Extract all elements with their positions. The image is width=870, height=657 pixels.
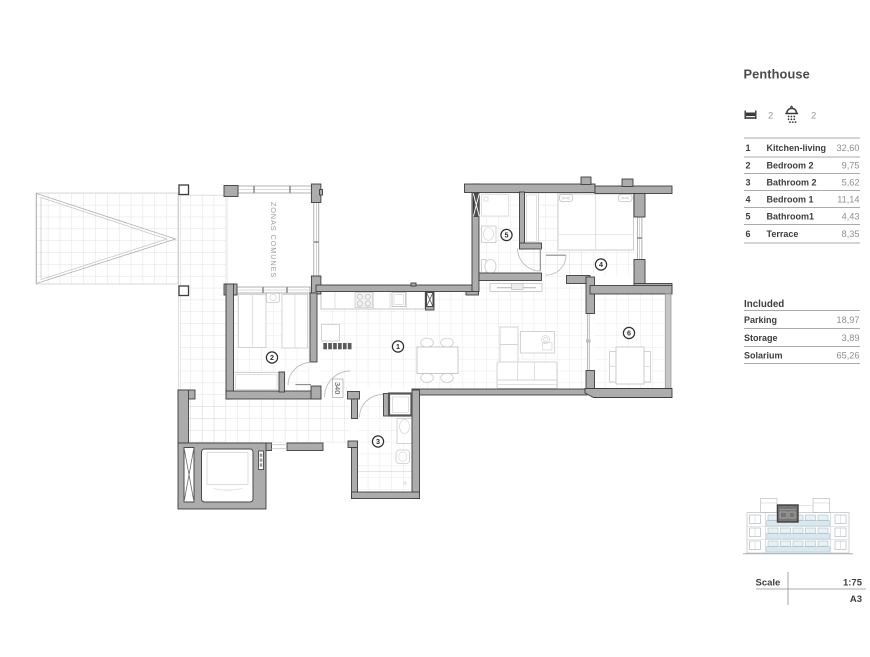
svg-text:2: 2 (746, 161, 751, 171)
svg-text:18,97: 18,97 (837, 315, 860, 325)
svg-text:Scale: Scale (756, 578, 781, 589)
svg-text:Bedroom 2: Bedroom 2 (767, 161, 814, 171)
svg-text:A3: A3 (850, 594, 862, 605)
svg-text:3: 3 (376, 437, 380, 446)
svg-text:Bathroom1: Bathroom1 (767, 211, 815, 221)
svg-text:Penthouse: Penthouse (744, 67, 810, 82)
svg-text:65,26: 65,26 (837, 350, 860, 360)
svg-text:3,89: 3,89 (842, 333, 860, 343)
svg-text:4: 4 (746, 194, 751, 204)
svg-text:3: 3 (746, 177, 751, 187)
svg-text:32,60: 32,60 (837, 143, 860, 153)
svg-text:4: 4 (599, 260, 603, 269)
svg-text:Storage: Storage (744, 333, 778, 343)
svg-text:9,75: 9,75 (842, 161, 860, 171)
svg-text:8,35: 8,35 (842, 229, 860, 239)
svg-text:Solarium: Solarium (744, 350, 783, 360)
svg-text:1:75: 1:75 (843, 578, 863, 589)
svg-text:11,14: 11,14 (837, 194, 859, 204)
svg-text:2: 2 (811, 111, 816, 122)
svg-text:340: 340 (333, 382, 342, 394)
svg-text:1: 1 (396, 342, 400, 351)
svg-text:5: 5 (746, 211, 751, 221)
svg-text:5,62: 5,62 (842, 177, 860, 187)
svg-text:5: 5 (505, 231, 509, 240)
svg-text:ZONAS COMUNES: ZONAS COMUNES (269, 202, 278, 278)
svg-text:6: 6 (746, 229, 751, 239)
svg-text:Parking: Parking (744, 315, 777, 325)
svg-text:Bathroom 2: Bathroom 2 (767, 177, 817, 187)
svg-text:2: 2 (768, 111, 773, 122)
svg-text:Included: Included (744, 299, 784, 310)
svg-text:1: 1 (746, 143, 751, 153)
svg-text:2: 2 (270, 353, 274, 362)
svg-text:Bedroom 1: Bedroom 1 (767, 194, 814, 204)
svg-text:6: 6 (627, 329, 631, 338)
svg-text:Kitchen-living: Kitchen-living (767, 143, 827, 153)
svg-text:4,43: 4,43 (842, 211, 860, 221)
svg-text:Terrace: Terrace (767, 229, 799, 239)
